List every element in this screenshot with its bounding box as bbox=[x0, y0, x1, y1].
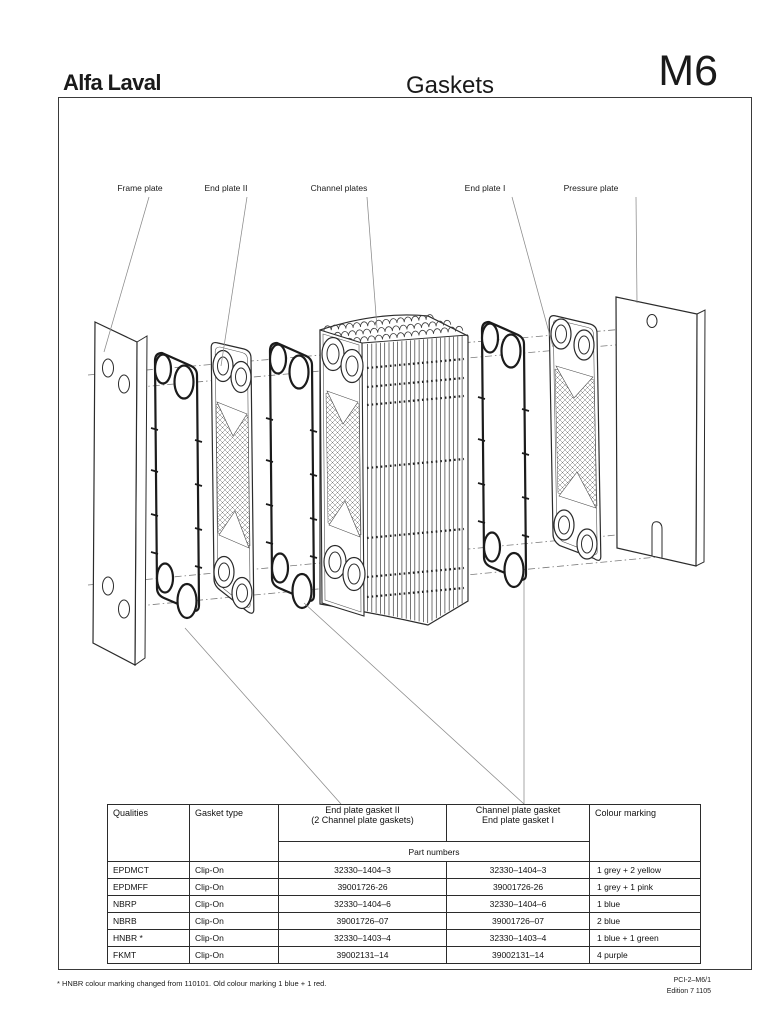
col-header-qualities: Qualities bbox=[108, 805, 190, 862]
label-pressure-plate: Pressure plate bbox=[564, 183, 619, 193]
end-plate-gasket-ii bbox=[151, 353, 202, 618]
end-plate-ii bbox=[211, 343, 254, 614]
col-header-end-plate-gasket-ii: End plate gasket II (2 Channel plate gas… bbox=[279, 805, 447, 842]
label-end-plate-i: End plate I bbox=[465, 183, 506, 193]
label-channel-plates: Channel plates bbox=[311, 183, 368, 193]
cell-colour-marking: 2 blue bbox=[590, 913, 701, 930]
header-line: Colour marking bbox=[595, 808, 667, 819]
end-plate-i bbox=[549, 316, 601, 561]
cell-part-channel-end-i: 39001726-26 bbox=[447, 879, 590, 896]
cell-part-end-plate-ii: 32330–1404–3 bbox=[279, 862, 447, 879]
cell-quality: EPDMFF bbox=[108, 879, 190, 896]
cell-part-end-plate-ii: 39002131–14 bbox=[279, 947, 447, 964]
channel-plate-gasket-right bbox=[478, 322, 529, 587]
cell-part-channel-end-i: 32330–1404–3 bbox=[447, 862, 590, 879]
header-line: Channel plate gasket bbox=[447, 805, 589, 815]
cell-part-channel-end-i: 32330–1403–4 bbox=[447, 930, 590, 947]
cell-colour-marking: 1 blue bbox=[590, 896, 701, 913]
cell-quality: EPDMCT bbox=[108, 862, 190, 879]
cell-gasket-type: Clip-On bbox=[190, 879, 279, 896]
header-line: (2 Channel plate gaskets) bbox=[279, 815, 446, 825]
cell-part-channel-end-i: 39001726–07 bbox=[447, 913, 590, 930]
document-reference: PCI-2–M6/1 Edition 7 1105 bbox=[667, 976, 711, 997]
channel-plates-stack bbox=[320, 315, 468, 625]
doc-ref-number: PCI-2–M6/1 bbox=[667, 976, 711, 987]
document-page: Alfa Laval Gaskets M6 bbox=[0, 0, 768, 1024]
cell-colour-marking: 1 blue + 1 green bbox=[590, 930, 701, 947]
table-row: FKMT Clip-On 39002131–14 39002131–14 4 p… bbox=[108, 947, 701, 964]
label-end-plate-ii: End plate II bbox=[204, 183, 247, 193]
pressure-plate bbox=[616, 297, 705, 566]
label-frame-plate: Frame plate bbox=[117, 183, 163, 193]
cell-colour-marking: 1 grey + 2 yellow bbox=[590, 862, 701, 879]
gasket-part-numbers-table: Qualities Gasket type End plate gasket I… bbox=[107, 804, 701, 964]
cell-gasket-type: Clip-On bbox=[190, 947, 279, 964]
channel-plate-gasket-left bbox=[266, 343, 317, 608]
part-numbers-subheader: Part numbers bbox=[279, 842, 590, 862]
cell-quality: FKMT bbox=[108, 947, 190, 964]
cell-quality: NBRB bbox=[108, 913, 190, 930]
cell-gasket-type: Clip-On bbox=[190, 930, 279, 947]
col-header-colour-marking: Colour marking bbox=[590, 805, 701, 862]
table-row: NBRP Clip-On 32330–1404–6 32330–1404–6 1… bbox=[108, 896, 701, 913]
cell-part-end-plate-ii: 32330–1403–4 bbox=[279, 930, 447, 947]
header-line: End plate gasket I bbox=[447, 815, 589, 825]
cell-quality: NBRP bbox=[108, 896, 190, 913]
cell-gasket-type: Clip-On bbox=[190, 896, 279, 913]
doc-edition: Edition 7 1105 bbox=[667, 987, 711, 998]
col-header-channel-plate-gasket: Channel plate gasket End plate gasket I bbox=[447, 805, 590, 842]
cell-colour-marking: 4 purple bbox=[590, 947, 701, 964]
cell-part-channel-end-i: 32330–1404–6 bbox=[447, 896, 590, 913]
table-row: EPDMFF Clip-On 39001726-26 39001726-26 1… bbox=[108, 879, 701, 896]
cell-part-channel-end-i: 39002131–14 bbox=[447, 947, 590, 964]
table-row: EPDMCT Clip-On 32330–1404–3 32330–1404–3… bbox=[108, 862, 701, 879]
frame-plate bbox=[93, 322, 147, 665]
cell-part-end-plate-ii: 39001726-26 bbox=[279, 879, 447, 896]
cell-colour-marking: 1 grey + 1 pink bbox=[590, 879, 701, 896]
cell-part-end-plate-ii: 39001726–07 bbox=[279, 913, 447, 930]
header-line: End plate gasket II bbox=[279, 805, 446, 815]
cell-gasket-type: Clip-On bbox=[190, 862, 279, 879]
cell-part-end-plate-ii: 32330–1404–6 bbox=[279, 896, 447, 913]
cell-gasket-type: Clip-On bbox=[190, 913, 279, 930]
col-header-gasket-type: Gasket type bbox=[190, 805, 279, 862]
table-row: HNBR * Clip-On 32330–1403–4 32330–1403–4… bbox=[108, 930, 701, 947]
table-row: NBRB Clip-On 39001726–07 39001726–07 2 b… bbox=[108, 913, 701, 930]
hnbr-footnote: * HNBR colour marking changed from 11010… bbox=[57, 979, 326, 988]
cell-quality: HNBR * bbox=[108, 930, 190, 947]
